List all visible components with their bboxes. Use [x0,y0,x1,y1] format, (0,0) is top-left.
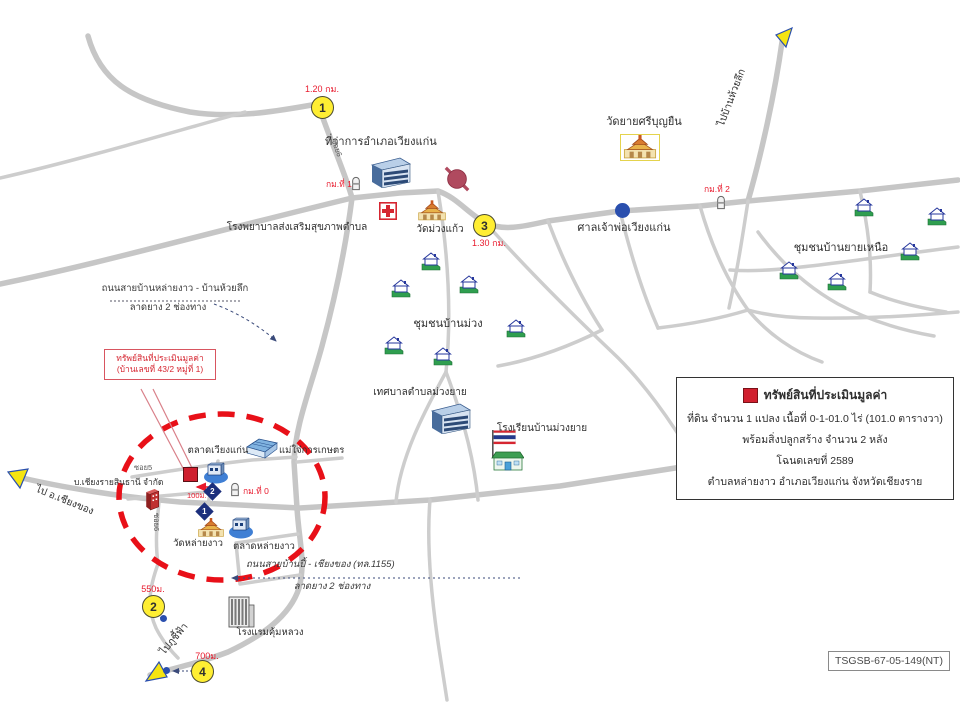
community-ban-muang-label: ชุมชนบ้านม่วง [413,318,482,331]
distance-3-label: 1.30 กม. [472,238,506,248]
company-building-icon [144,488,161,511]
market-wiang-kaen-icon [203,460,229,484]
village-house-icon [505,318,529,338]
village-house-icon [826,271,850,291]
map-canvas: 2 1 1 2 3 4 1.20 กม. 550ม. 1.30 กม. 700ม… [0,0,960,720]
wat-muang-kaew-temple-icon [416,200,448,222]
property-callout-box: ทรัพย์สินที่ประเมินมูลค่า (บ้านเลขที่ 43… [104,349,216,380]
south-road-name-label: ถนนสายบ้านปี้ - เชียงของ (ทล.1155) [246,560,395,571]
north-road-name-label: ถนนสายบ้านหล่ายงาว - บ้านห้วยลึก [102,284,249,295]
health-center-label: โรงพยาบาลส่งเสริมสุขภาพตำบล [227,222,368,234]
hotel-building-icon [226,595,256,629]
village-house-icon [420,251,444,271]
distance-marker-1: 1 [311,96,334,119]
agri-shop-warehouse-icon [246,438,278,460]
north-road-pointer-arrow [214,304,276,341]
wat-lai-ngao-temple-icon [196,518,226,538]
school-label: โรงเรียนบ้านม่วงยาย [497,423,587,435]
village-house-icon [926,206,950,226]
legend-box: ทรัพย์สินที่ประเมินมูลค่า ที่ดิน จำนวน 1… [676,377,954,500]
callout-connector-line [141,389,184,470]
village-house-icon [899,241,923,261]
village-house-icon [390,278,414,298]
district-office-label: ที่ว่าการอำเภอเวียงแก่น [325,136,437,149]
distance-marker-4: 4 [191,660,214,683]
distance-1-label: 1.20 กม. [305,84,339,94]
company-label: บ.เชียงรายสินธานี จำกัด [74,478,163,488]
legend-line2: พร้อมสิ่งปลูกสร้าง จำนวน 2 หลัง [681,431,949,448]
village-house-icon [778,260,802,280]
property-callout-line2: (บ้านเลขที่ 43/2 หมู่ที่ 1) [107,364,213,375]
legend-title: ทรัพย์สินที่ประเมินมูลค่า [764,386,888,405]
market-lai-ngao-icon [228,515,254,539]
northeast-direction-arrow-icon [776,28,792,47]
wat-yai-sribunyuen-label: วัดยายศรีบุญยืน [606,116,682,129]
km-post-2-icon [716,195,726,210]
roundabout-icon [443,165,471,193]
shrine-marker-icon [615,203,630,218]
south-road-detail-label: ลาดยาง 2 ช่องทาง [294,582,370,593]
hotel-label: โรงแรมคุ้มหลวง [236,628,303,639]
health-center-cross-icon [379,202,397,220]
market-wiang-kaen-label: ตลาดเวียงแก่น [188,446,249,457]
km0-label: กม.ที่ 0 [243,487,269,497]
legend-line3: โฉนดเลขที่ 2589 [681,452,949,469]
document-reference-box: TSGSB-67-05-149(NT) [828,651,950,671]
property-marker [183,467,198,482]
soi5-label: ซอย5 [134,464,152,473]
property-callout-line1: ทรัพย์สินที่ประเมินมูลค่า [107,353,213,364]
km-post-1-icon [351,176,361,191]
wat-yai-sribunyuen-temple-icon [620,134,660,161]
near-distance-label: 100ม. [187,492,207,501]
market-lai-ngao-label: ตลาดหล่ายงาว [233,542,295,553]
wat-muang-kaew-label: วัดม่วงแก้ว [416,224,463,236]
village-house-icon [853,197,877,217]
agri-shop-label: แม่ใจ๋การเกษตร [279,446,344,457]
distance-4-label: 700ม. [195,651,218,661]
community-yai-nuea-label: ชุมชนบ้านยายเหนือ [794,242,889,255]
shrine-label: ศาลเจ้าพ่อเวียงแก่น [577,222,670,235]
km2-label: กม.ที่ 2 [704,185,730,195]
distance-2-label: 550ม. [141,584,164,594]
distance-marker-3: 3 [473,214,496,237]
district-office-building-icon [366,156,412,188]
village-house-icon [458,274,482,294]
legend-line1: ที่ดิน จำนวน 1 แปลง เนื้อที่ 0-1-01.0 ไร… [681,410,949,427]
village-house-icon [432,346,456,366]
school-flag-icon [490,430,524,472]
poi-dot [163,667,170,674]
legend-title-row: ทรัพย์สินที่ประเมินมูลค่า [681,386,949,405]
callout-connector-line [153,389,192,468]
village-house-icon [383,335,407,355]
km-post-0-icon [230,482,240,497]
north-road-detail-label: ลาดยาง 2 ช่องทาง [130,303,206,314]
legend-line4: ตำบลหล่ายงาว อำเภอเวียงแก่น จังหวัดเชียง… [681,473,949,490]
legend-property-swatch [743,388,758,403]
wat-lai-ngao-label: วัดหล่ายงาว [173,539,223,550]
km1-label: กม.ที่ 1 [326,180,352,190]
soi6-label: ซอย6 [151,513,160,531]
municipality-label: เทศบาลตำบลม่วงยาย [373,387,466,399]
poi-dot [160,615,167,622]
municipality-building-icon [426,402,472,434]
